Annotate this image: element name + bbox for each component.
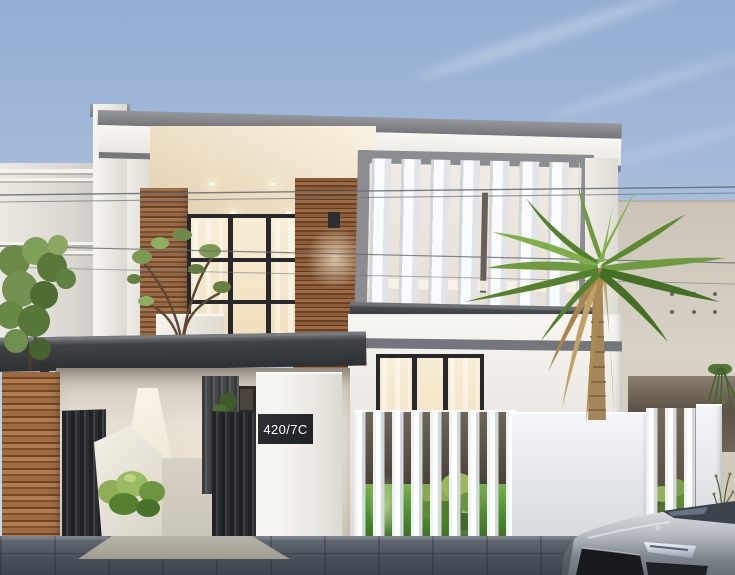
scene-architectural-render: 420/7C [0,0,735,575]
address-sign-text: 420/7C [263,422,307,437]
entry-gate-right [212,411,259,551]
entry-shrubs [96,458,168,520]
parked-car [558,494,735,575]
palm-tree [428,172,735,440]
wood-entry-pillar [2,372,60,554]
street-tree [0,203,82,371]
address-sign: 420/7C [258,414,313,444]
car-emblem [655,525,661,531]
address-pillar [256,372,342,554]
